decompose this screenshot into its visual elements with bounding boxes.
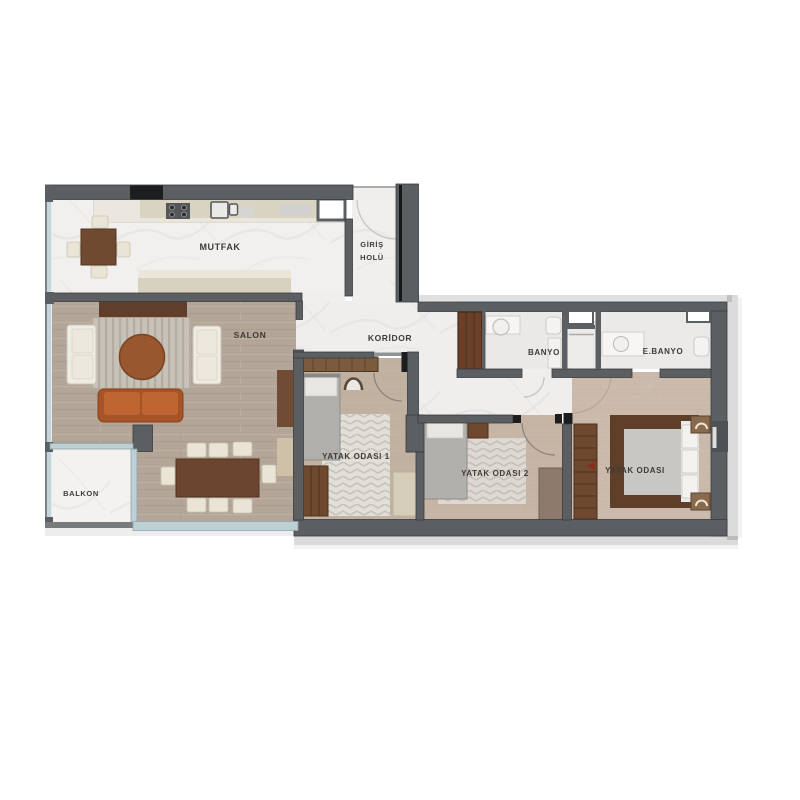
svg-text:HOLÜ: HOLÜ xyxy=(360,253,384,262)
svg-text:BALKON: BALKON xyxy=(63,489,99,498)
svg-text:E.BANYO: E.BANYO xyxy=(643,347,684,356)
svg-text:GİRİŞ: GİRİŞ xyxy=(360,240,383,249)
svg-text:BANYO: BANYO xyxy=(528,348,560,357)
svg-text:YATAK ODASI 1: YATAK ODASI 1 xyxy=(322,452,390,461)
svg-text:MUTFAK: MUTFAK xyxy=(199,242,240,252)
svg-text:KORİDOR: KORİDOR xyxy=(368,333,412,343)
svg-text:SALON: SALON xyxy=(234,330,267,340)
svg-text:YATAK ODASI 2: YATAK ODASI 2 xyxy=(461,469,529,478)
svg-text:YATAK ODASI: YATAK ODASI xyxy=(605,466,665,475)
